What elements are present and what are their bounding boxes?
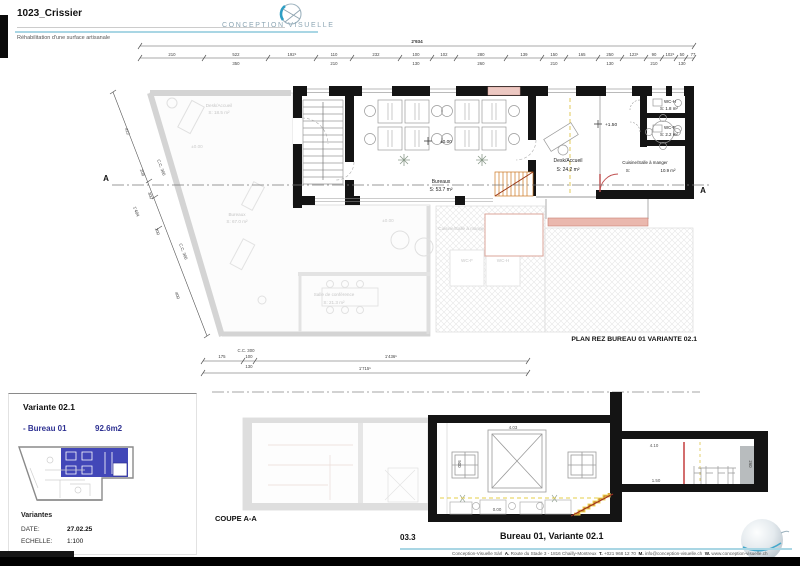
svg-text:S:: S: — [626, 168, 630, 173]
svg-text:280: 280 — [477, 52, 485, 57]
svg-text:400: 400 — [174, 291, 181, 300]
svg-text:WC-H: WC-H — [664, 99, 676, 104]
section-existing — [243, 418, 428, 510]
phone: +021 968 12 70 — [604, 551, 636, 556]
svg-text:WC-F: WC-F — [461, 258, 473, 263]
svg-text:210: 210 — [650, 61, 658, 66]
address: Route du Stade 3 - 1816 Chailly-Montreux — [511, 551, 597, 556]
svg-text:C.C. 300: C.C. 300 — [156, 159, 167, 177]
svg-text:S: 24.2 m²: S: 24.2 m² — [556, 167, 579, 173]
svg-text:1'484: 1'484 — [132, 206, 141, 218]
svg-text:4.03: 4.03 — [509, 425, 518, 430]
svg-text:232: 232 — [372, 52, 380, 57]
svg-text:200: 200 — [154, 227, 161, 236]
scan-edge-stripe — [0, 15, 8, 58]
svg-text:S: 2.2 m²: S: 2.2 m² — [660, 132, 678, 137]
svg-text:500: 500 — [457, 460, 462, 468]
date-label: DATE: — [21, 526, 40, 533]
section-hall: 4.03 0.00 500 — [428, 392, 622, 522]
company-name: Conception-Visuelle Sàrl — [452, 551, 502, 556]
footer-rule — [400, 548, 792, 550]
svg-text:Bureaux: Bureaux — [432, 179, 451, 185]
svg-text:1'715⁵: 1'715⁵ — [359, 366, 371, 371]
svg-text:90: 90 — [652, 52, 657, 57]
svg-text:102⁵: 102⁵ — [666, 52, 675, 57]
svg-text:Cuisine/Salle à manger: Cuisine/Salle à manger — [438, 226, 486, 231]
svg-text:0.00: 0.00 — [493, 507, 502, 512]
svg-text:Salle de conférence: Salle de conférence — [314, 292, 355, 297]
svg-text:±0.00: ±0.00 — [191, 144, 203, 149]
dims-bottom: C.C. 300 175 100 130 1'436⁵ 1'715⁵ — [201, 348, 530, 376]
bottom-bar — [0, 557, 800, 566]
svg-text:350: 350 — [232, 61, 240, 66]
svg-text:4.10: 4.10 — [650, 443, 659, 448]
svg-text:S: 67.0 m²: S: 67.0 m² — [226, 219, 248, 224]
date-value: 27.02.25 — [67, 526, 92, 533]
section-label: COUPE A-A — [215, 514, 257, 523]
desk-cluster — [442, 100, 520, 150]
svg-text:123⁵: 123⁵ — [630, 52, 639, 57]
svg-text:+1.50: +1.50 — [605, 122, 617, 128]
svg-text:100: 100 — [245, 354, 253, 359]
svg-text:165: 165 — [578, 52, 586, 57]
svg-text:Desk/Accueil: Desk/Accueil — [554, 158, 583, 164]
svg-text:130: 130 — [678, 61, 686, 66]
svg-text:522: 522 — [232, 52, 240, 57]
svg-text:C.C. 300: C.C. 300 — [238, 348, 256, 353]
svg-text:Desk/Accueil: Desk/Accueil — [206, 103, 233, 108]
svg-text:150: 150 — [550, 52, 558, 57]
reception-desk — [544, 123, 579, 155]
section-drawing: 4.03 0.00 500 4.10 1.50 260 COUPE A-A — [212, 392, 768, 523]
svg-text:2'934: 2'934 — [411, 39, 423, 44]
section-marker-right: A — [700, 186, 706, 195]
variant-panel: Variante 02.1 - Bureau 01 92.6m2 Variant… — [8, 393, 197, 555]
variants-list-title: Variantes — [21, 512, 52, 519]
svg-text:±0.00: ±0.00 — [440, 139, 452, 145]
svg-text:100: 100 — [412, 52, 420, 57]
section-right-room: 4.10 1.50 260 — [622, 431, 768, 492]
svg-text:210: 210 — [330, 61, 338, 66]
svg-text:S: 53.7 m²: S: 53.7 m² — [429, 187, 452, 193]
svg-text:102: 102 — [440, 52, 448, 57]
scale-label: ECHELLE: — [21, 538, 52, 545]
floor-plan: Desk/Accueil S: 18.5 m² ±0.00 Bureaux S:… — [103, 39, 712, 376]
sheet-number: 03.3 — [400, 533, 416, 542]
level-markers: ±0.00 +1.50 — [424, 120, 617, 145]
svg-text:WC-F: WC-F — [664, 125, 676, 130]
svg-text:77: 77 — [691, 52, 696, 57]
svg-text:210: 210 — [168, 52, 176, 57]
svg-text:S: 1.8 m²: S: 1.8 m² — [660, 106, 678, 111]
variant-item-label[interactable]: - Bureau 01 — [23, 424, 67, 433]
scale-value: 1:100 — [67, 538, 83, 545]
stair-new — [495, 172, 533, 196]
plan-title: PLAN REZ BUREAU 01 VARIANTE 02.1 — [571, 336, 697, 343]
svg-text:210: 210 — [550, 61, 558, 66]
project-code: 1023_Crissier — [17, 8, 82, 19]
email[interactable]: info@conception-visuelle.ch — [645, 551, 702, 556]
svg-text:130: 130 — [412, 61, 420, 66]
plan-furniture — [303, 98, 682, 196]
svg-text:130: 130 — [606, 61, 614, 66]
svg-text:250: 250 — [606, 52, 614, 57]
logo-wordmark: CONCEPTION VISUELLE — [222, 22, 334, 29]
variant-panel-title: Variante 02.1 — [23, 402, 75, 412]
svg-text:S: 21.3 m²: S: 21.3 m² — [323, 300, 345, 305]
svg-text:260: 260 — [748, 460, 753, 468]
svg-text:139: 139 — [520, 52, 528, 57]
svg-text:110: 110 — [331, 52, 338, 57]
svg-text:10.9 m²: 10.9 m² — [661, 168, 676, 173]
dims-top: 2'934 210 522350 192⁵ 110210 232 100130 … — [138, 39, 696, 66]
svg-text:S: 18.5 m²: S: 18.5 m² — [208, 110, 230, 115]
stair-existing — [303, 100, 343, 184]
sheet-title: Bureau 01, Variante 02.1 — [500, 531, 604, 541]
footer-contact: Conception-Visuelle Sàrl A. Route du Sta… — [452, 551, 797, 556]
svg-text:175: 175 — [218, 354, 226, 359]
svg-text:1'436⁵: 1'436⁵ — [385, 354, 397, 359]
svg-text:130: 130 — [245, 364, 253, 369]
svg-text:WC-H: WC-H — [497, 258, 510, 263]
svg-text:412: 412 — [124, 127, 131, 136]
website-label: W. — [705, 551, 710, 556]
address-label: A. — [505, 551, 510, 556]
logo-icon — [281, 4, 301, 24]
architectural-sheet: { "header": { "project_code": "1023_Cris… — [0, 0, 800, 566]
svg-text:260: 260 — [477, 61, 485, 66]
email-label: M. — [639, 551, 644, 556]
svg-text:192⁵: 192⁵ — [288, 52, 297, 57]
svg-text:C.C. 300: C.C. 300 — [178, 243, 189, 261]
svg-text:50: 50 — [680, 52, 685, 57]
desk-cluster — [365, 100, 443, 150]
svg-text:300: 300 — [147, 191, 154, 200]
website[interactable]: www.conception-visuelle.ch — [711, 551, 767, 556]
phone-label: T. — [599, 551, 603, 556]
svg-text:Cuisine/Salle à manger: Cuisine/Salle à manger — [622, 160, 668, 165]
svg-text:±0.00: ±0.00 — [382, 218, 394, 223]
section-marker-left: A — [103, 174, 109, 183]
svg-text:1.50: 1.50 — [652, 478, 661, 483]
project-subtitle: Réhabilitation d'une surface artisanale — [17, 35, 110, 41]
svg-text:Bureaux: Bureaux — [228, 212, 246, 217]
print-tag — [0, 551, 74, 557]
variant-item-area: 92.6m2 — [95, 424, 122, 433]
